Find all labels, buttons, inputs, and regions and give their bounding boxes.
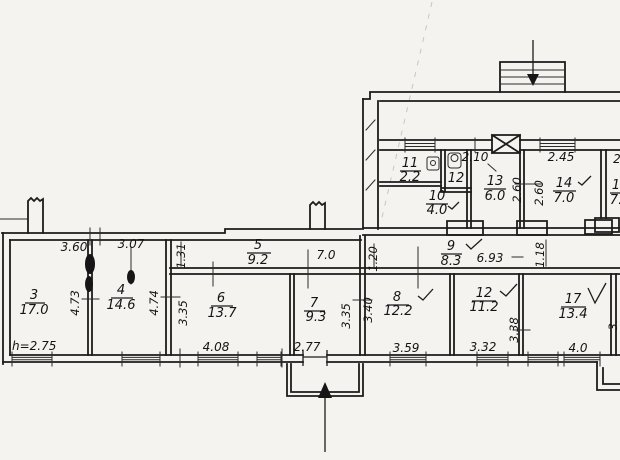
room-area: 4.0: [427, 203, 448, 218]
room-area: 17.0: [20, 303, 49, 318]
room-area: 13.4: [559, 307, 588, 322]
room-number: 5: [254, 238, 262, 253]
paper-background: [0, 0, 620, 460]
room-number: 10: [429, 189, 446, 204]
dim-label: 6.93: [477, 251, 504, 265]
room-number: 12: [476, 286, 493, 301]
dim-label-vertical: 3.38: [507, 317, 521, 343]
room-area: 9.3: [306, 310, 327, 325]
dim-label: 2.45: [548, 150, 575, 164]
dim-label-vertical: 3.35: [176, 300, 190, 326]
dim-label-vertical: 2.60: [532, 180, 546, 206]
dim-label-vertical: 4.74: [147, 290, 161, 316]
dim-label-vertical: 3.35: [339, 303, 353, 329]
dim-label-vertical: 1.31: [174, 243, 188, 269]
dim-label: 7.0: [316, 248, 335, 262]
room-number: 6: [217, 291, 225, 306]
room-area: 9.2: [248, 253, 269, 268]
dim-label: 3.60: [61, 240, 88, 254]
room-area: 7.0: [554, 191, 575, 206]
dim-label-vertical: 3.: [606, 320, 620, 331]
room-number: 13: [487, 174, 504, 189]
room-area: 6.0: [485, 189, 506, 204]
dim-label-vertical: 1.20: [366, 246, 380, 272]
room-number: 3: [30, 288, 38, 303]
room-number: 4: [117, 283, 125, 298]
dim-label: 3.32: [470, 340, 497, 354]
room-area: 12.2: [384, 304, 413, 319]
dim-label: 2: [613, 152, 620, 166]
dim-label: 3.07: [118, 237, 145, 251]
room-area: 8.3: [441, 254, 462, 269]
room-number: 1: [612, 178, 620, 193]
room-area: 7.: [610, 193, 620, 208]
room-number: 8: [393, 290, 401, 305]
room-number: 17: [565, 292, 582, 307]
room-number: 9: [447, 239, 455, 254]
dim-label: 4.0: [568, 341, 587, 355]
room-number: 7: [310, 296, 319, 311]
room-area: 13.7: [208, 306, 238, 321]
dim-label: 2.10: [462, 150, 489, 164]
dim-label-vertical: 2.60: [510, 177, 524, 203]
room-number: 14: [556, 176, 573, 191]
dim-label-vertical: 1.18: [533, 242, 547, 268]
floorplan-drawing: 3.60 3.07 7.0 6.93 3 17.0 h=2.75 4 14.6 …: [0, 0, 620, 460]
dim-label-vertical: 3.40: [361, 297, 375, 323]
room-area: 2.2: [400, 170, 421, 185]
dim-label: 3.59: [393, 341, 420, 355]
floorplan-scan: 3.60 3.07 7.0 6.93 3 17.0 h=2.75 4 14.6 …: [0, 0, 620, 460]
dim-label-vertical: 4.73: [68, 290, 82, 316]
room-number: 12: [448, 171, 465, 186]
dim-label: 2.77: [294, 340, 321, 354]
dim-label: 4.08: [203, 340, 230, 354]
room-area: 14.6: [107, 298, 136, 313]
room-number: 11: [402, 156, 419, 171]
ceiling-height-label: h=2.75: [12, 339, 56, 353]
room-area: 11.2: [470, 300, 499, 315]
